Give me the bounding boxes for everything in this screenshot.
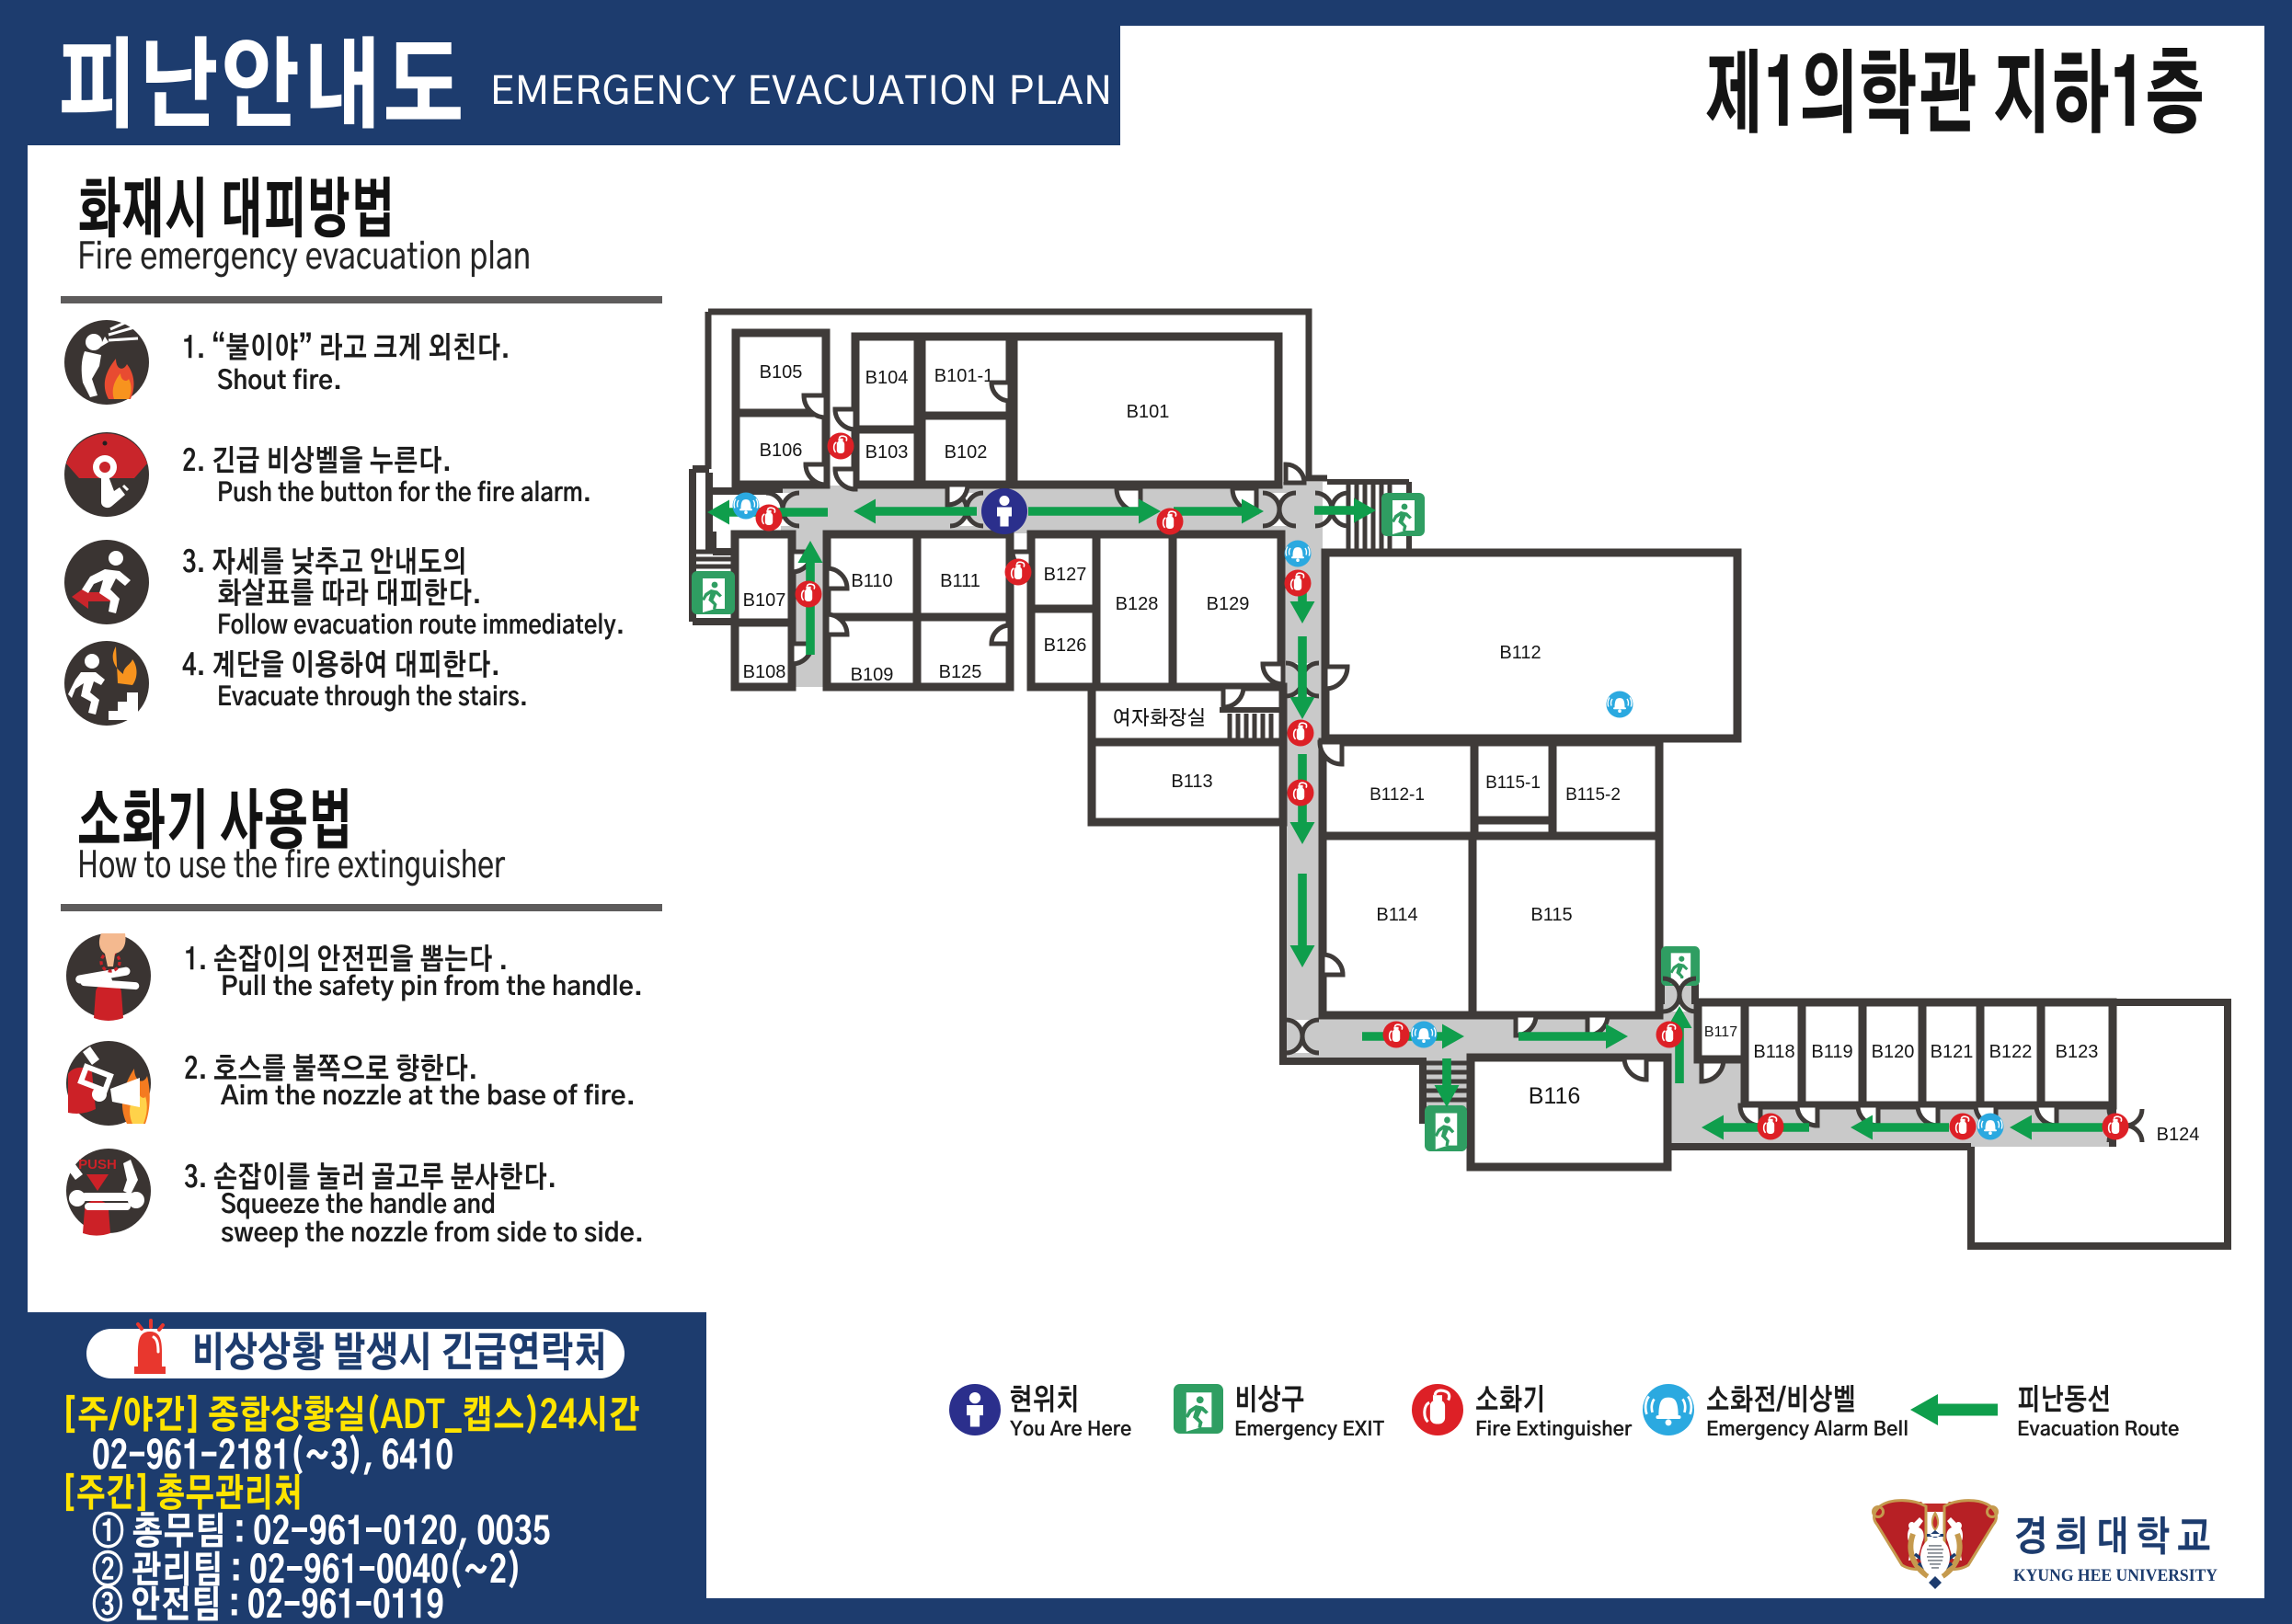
svg-text:B129: B129 xyxy=(1207,594,1250,614)
svg-text:B122: B122 xyxy=(1989,1042,2033,1062)
svg-text:B110: B110 xyxy=(851,571,892,591)
svg-text:B128: B128 xyxy=(1116,594,1159,614)
svg-text:B114: B114 xyxy=(1376,905,1417,925)
svg-text:B107: B107 xyxy=(743,590,786,611)
svg-text:B101-1: B101-1 xyxy=(934,366,994,386)
svg-text:B121: B121 xyxy=(1931,1042,1974,1062)
svg-text:B120: B120 xyxy=(1872,1042,1915,1062)
svg-text:B101: B101 xyxy=(1127,402,1170,422)
svg-text:KYUNG HEE UNIVERSITY: KYUNG HEE UNIVERSITY xyxy=(2013,1566,2218,1585)
svg-text:B119: B119 xyxy=(1811,1042,1852,1062)
svg-text:B113: B113 xyxy=(1171,772,1212,792)
svg-text:B104: B104 xyxy=(865,368,909,388)
svg-text:B124: B124 xyxy=(2157,1125,2200,1145)
svg-text:B116: B116 xyxy=(1529,1083,1581,1109)
svg-text:B115-2: B115-2 xyxy=(1565,785,1621,805)
svg-text:B126: B126 xyxy=(1044,635,1087,656)
svg-text:B102: B102 xyxy=(945,442,988,463)
svg-text:B123: B123 xyxy=(2056,1042,2099,1062)
svg-text:PUSH: PUSH xyxy=(78,1157,117,1172)
svg-text:B105: B105 xyxy=(760,362,803,383)
svg-text:B112: B112 xyxy=(1499,643,1541,663)
svg-text:B108: B108 xyxy=(743,662,786,682)
svg-text:B117: B117 xyxy=(1704,1024,1737,1040)
svg-text:B111: B111 xyxy=(940,571,980,591)
svg-text:B103: B103 xyxy=(865,442,909,463)
svg-text:B118: B118 xyxy=(1753,1042,1794,1062)
svg-text:B115-1: B115-1 xyxy=(1485,773,1541,793)
svg-text:B125: B125 xyxy=(939,662,982,682)
svg-text:B112-1: B112-1 xyxy=(1369,785,1425,805)
svg-text:B115: B115 xyxy=(1530,905,1572,925)
svg-text:B127: B127 xyxy=(1044,565,1087,585)
svg-text:B109: B109 xyxy=(851,665,894,685)
svg-text:B106: B106 xyxy=(760,440,803,461)
